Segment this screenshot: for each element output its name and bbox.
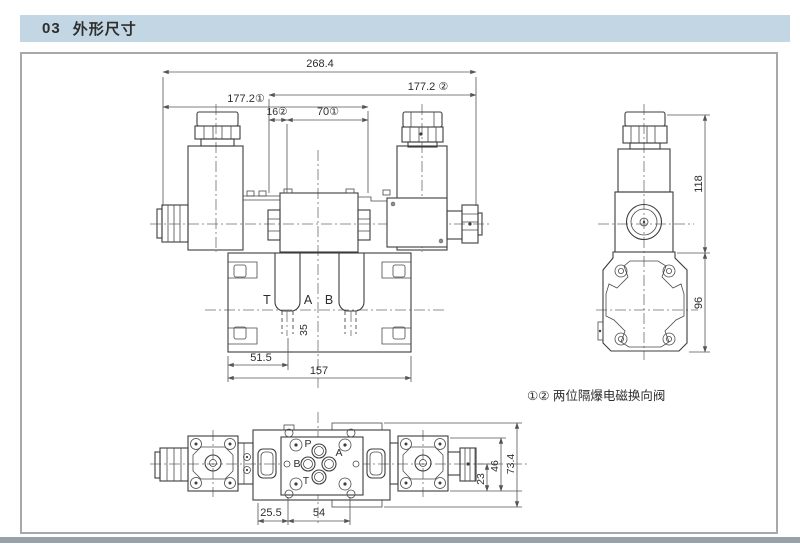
dim-label-157: 157 xyxy=(310,365,328,377)
dim-label-96: 96 xyxy=(693,297,705,309)
dim-label-35: 35 xyxy=(298,324,310,336)
dim-label-118: 118 xyxy=(693,175,705,193)
port-label-a: A xyxy=(304,293,313,307)
dim-label-177-2: 177.2 ② xyxy=(408,81,449,93)
valve-body xyxy=(280,193,358,252)
dimension-drawing: 268.4 177.2 ② 177.2① 16② 70① 51.5 157 35… xyxy=(0,0,800,543)
side-view-drawing: 118 96 xyxy=(596,104,710,360)
front-view-drawing: 268.4 177.2 ② 177.2① 16② 70① 51.5 157 35… xyxy=(150,58,490,388)
dim-label-54: 54 xyxy=(313,507,325,519)
dim-label-73-4: 73.4 xyxy=(505,454,517,475)
dim-label-177-1: 177.2① xyxy=(227,93,265,105)
right-cable-gland-cap xyxy=(403,112,442,127)
left-solenoid xyxy=(188,146,243,250)
figure-note: ①② 两位隔爆电磁换向阀 xyxy=(527,388,665,403)
left-connector xyxy=(162,205,188,242)
port-label-t2: T xyxy=(303,475,310,487)
port-label-p: P xyxy=(304,438,311,450)
dim-label-16: 16② xyxy=(266,106,287,118)
valve-base xyxy=(228,253,411,352)
nameplate xyxy=(387,198,447,247)
port-label-t: T xyxy=(263,293,271,307)
dim-label-25-5: 25.5 xyxy=(260,507,281,519)
port-label-a2: A xyxy=(335,447,342,459)
dim-label-overall-width: 268.4 xyxy=(306,58,334,70)
dim-label-51-5: 51.5 xyxy=(250,352,271,364)
dim-label-70: 70① xyxy=(317,106,339,118)
bottom-view-drawing: P A B T 25.5 54 23 46 73.4 xyxy=(150,412,527,526)
port-label-b: B xyxy=(325,293,333,307)
port-label-b2: B xyxy=(293,458,300,470)
dim-label-46: 46 xyxy=(489,460,501,472)
left-cable-gland-cap xyxy=(197,112,238,126)
dim-label-23: 23 xyxy=(475,473,487,485)
side-cable-gland-cap xyxy=(625,112,665,126)
